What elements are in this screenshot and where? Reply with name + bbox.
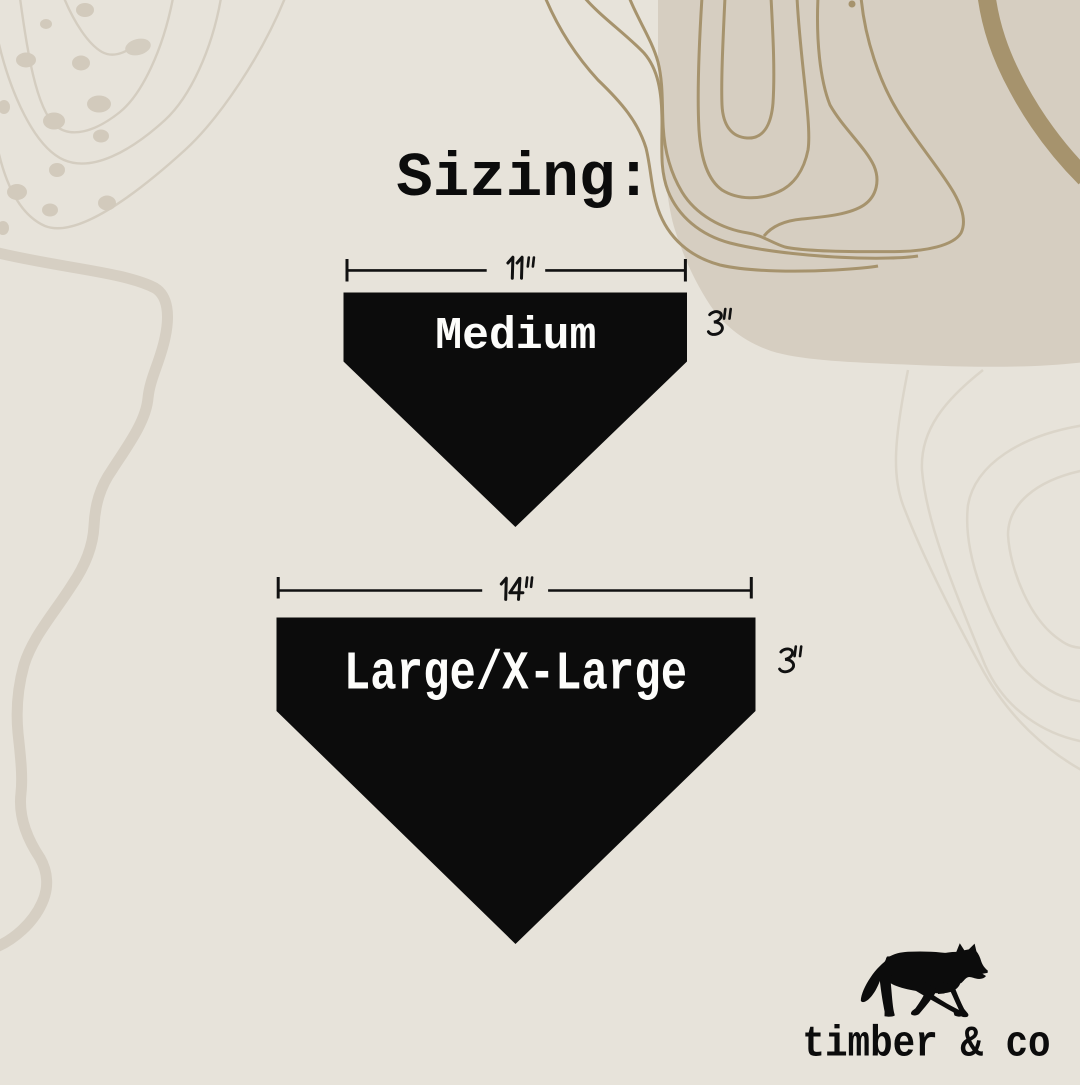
svg-text:Medium: Medium — [435, 312, 596, 362]
svg-text:timber & co: timber & co — [802, 1020, 1050, 1069]
svg-text:Large/X-Large: Large/X-Large — [344, 643, 687, 705]
svg-text:Sizing:: Sizing: — [396, 145, 651, 215]
